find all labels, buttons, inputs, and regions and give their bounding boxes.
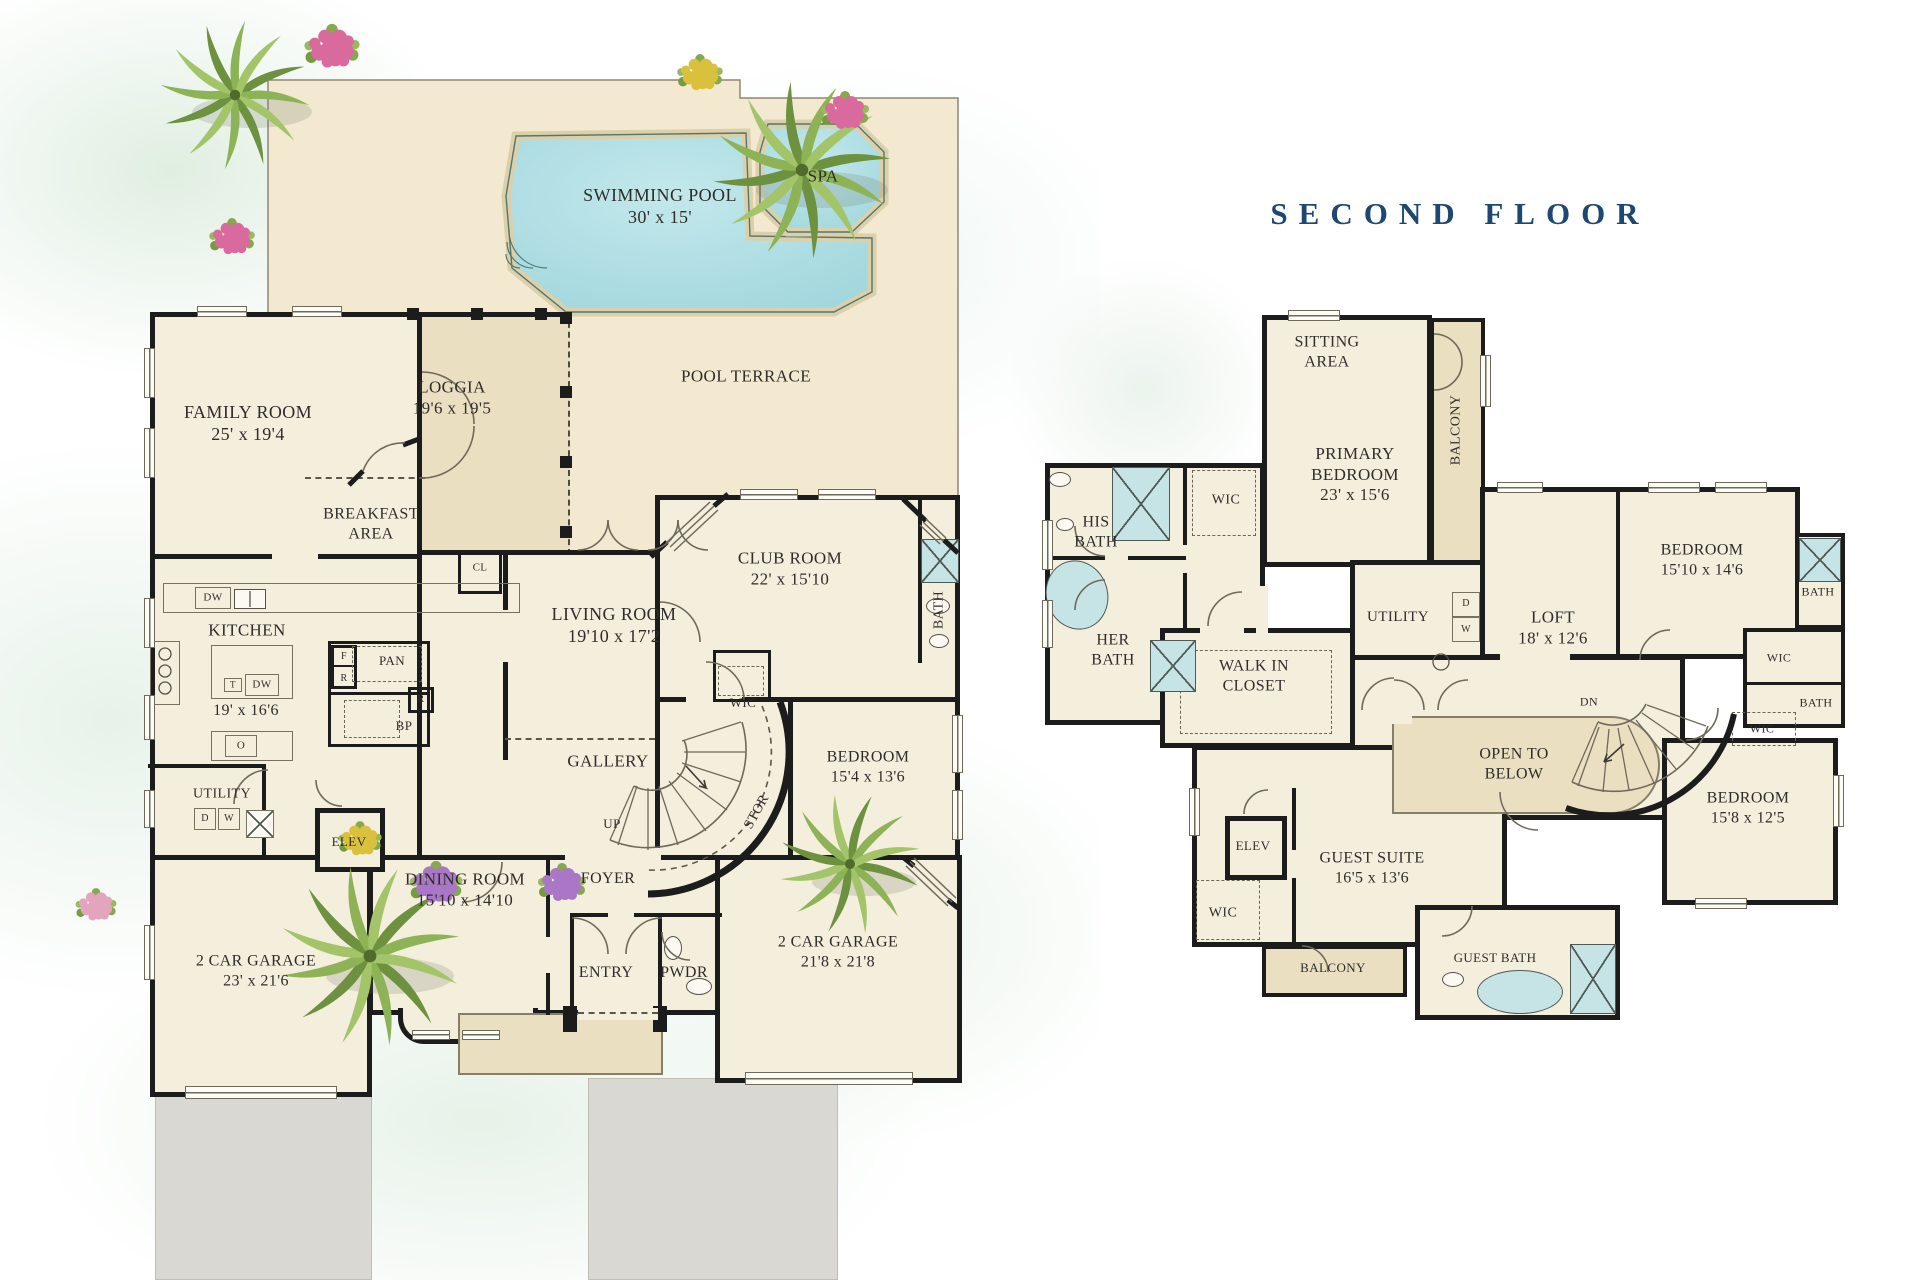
shower-fixture <box>921 539 959 583</box>
column <box>535 308 547 320</box>
ceiling-break <box>505 738 655 740</box>
column <box>560 526 572 538</box>
wall-segment <box>503 662 508 760</box>
wall-segment <box>546 857 550 937</box>
elevator-shaft <box>315 808 385 872</box>
opening <box>1360 712 1412 724</box>
window <box>412 1030 450 1040</box>
open-to-below <box>1392 716 1660 814</box>
wall-segment <box>570 913 608 917</box>
window <box>144 428 155 478</box>
shower-fixture <box>1799 538 1841 582</box>
column <box>560 386 572 398</box>
window <box>952 715 963 773</box>
garage-left-block <box>150 855 372 1097</box>
threshold <box>578 1012 658 1014</box>
elevator-shaft-2f <box>1225 816 1287 880</box>
wall-segment <box>546 973 550 1015</box>
primary-suite-block <box>1262 315 1432 567</box>
window <box>462 1030 500 1040</box>
dryer-box <box>1452 592 1480 617</box>
window <box>1695 898 1747 909</box>
washer-box <box>218 808 240 830</box>
window <box>818 489 876 500</box>
primary-balcony <box>1430 318 1485 564</box>
shower-fixture <box>1570 944 1616 1014</box>
wall-segment <box>658 913 662 1015</box>
dryer-box <box>194 808 216 830</box>
window <box>740 489 798 500</box>
shower-fixture <box>1112 467 1170 541</box>
opening <box>1500 649 1570 661</box>
dishwasher-box <box>245 674 279 696</box>
wall-segment <box>634 913 722 917</box>
loggia-block <box>417 312 570 555</box>
r-box <box>408 687 434 713</box>
wall-segment <box>1292 878 1296 947</box>
sink <box>664 936 682 960</box>
garage-door <box>185 1086 337 1099</box>
second-floor-title: SECOND FLOOR <box>1235 196 1685 232</box>
sink <box>929 634 949 648</box>
entry-stoop <box>458 1013 663 1075</box>
window <box>1288 310 1340 321</box>
wall-segment <box>1183 573 1187 630</box>
wall-segment <box>742 697 960 702</box>
wall-segment <box>150 554 272 559</box>
closet-dashes <box>1732 712 1796 746</box>
window <box>144 925 155 980</box>
club-bedroom-block <box>655 495 960 860</box>
closet-dashes <box>1180 650 1332 734</box>
window <box>197 306 247 317</box>
opening <box>565 848 661 860</box>
floorplan-scene: SWIMMING POOL30' x 15'SPAPOOL TERRACEFAM… <box>0 0 1920 1280</box>
closet-dashes <box>718 666 764 696</box>
wall-segment <box>1743 682 1845 685</box>
dining-entry-block <box>368 855 722 1015</box>
closet-dashes <box>1196 880 1260 940</box>
toilet <box>686 978 712 995</box>
sink <box>1056 518 1074 531</box>
oven-box <box>225 735 257 757</box>
wall-segment <box>570 913 574 1015</box>
wall-segment <box>660 697 686 702</box>
column <box>407 308 419 320</box>
wall-segment <box>318 554 422 559</box>
window <box>1497 482 1543 493</box>
guest-balcony <box>1262 945 1407 997</box>
bedroom-br-block <box>1662 738 1838 905</box>
washer-box <box>1452 617 1480 642</box>
toilet <box>926 598 950 614</box>
closet-dashes <box>344 700 400 738</box>
window <box>1715 482 1767 493</box>
closet-dashes <box>352 646 422 682</box>
wall-segment <box>1616 490 1620 656</box>
tub <box>1477 970 1563 1014</box>
wall-segment <box>1128 556 1186 560</box>
garage-right-block <box>715 855 962 1083</box>
window <box>144 348 155 398</box>
window <box>144 695 155 740</box>
kitchen-sink <box>234 589 266 609</box>
wall-segment <box>1183 463 1187 545</box>
window <box>1189 788 1200 836</box>
column <box>471 308 483 320</box>
window <box>1480 355 1491 407</box>
garage-door <box>745 1072 913 1085</box>
window <box>144 790 155 828</box>
ceiling-break <box>305 477 425 479</box>
window <box>1042 600 1053 648</box>
window <box>952 790 963 840</box>
window <box>292 306 342 317</box>
laundry-tub <box>246 810 274 838</box>
column <box>560 456 572 468</box>
window <box>1042 520 1053 570</box>
opening <box>1200 622 1244 634</box>
toilet <box>1049 472 1071 487</box>
column <box>560 312 572 324</box>
wall-segment <box>1292 788 1296 850</box>
dishwasher-box <box>195 587 231 609</box>
wall-segment <box>788 702 793 860</box>
opening <box>578 1008 658 1020</box>
trash-box <box>224 678 242 692</box>
window <box>1833 775 1844 827</box>
toilet <box>1442 972 1464 987</box>
window <box>1648 482 1700 493</box>
closet-dashes <box>1192 470 1256 536</box>
window <box>144 598 155 648</box>
wall-segment <box>148 764 266 768</box>
entry-pier <box>563 1006 577 1032</box>
opening <box>1256 586 1268 634</box>
spa <box>760 124 884 232</box>
shower-fixture <box>1150 640 1196 692</box>
